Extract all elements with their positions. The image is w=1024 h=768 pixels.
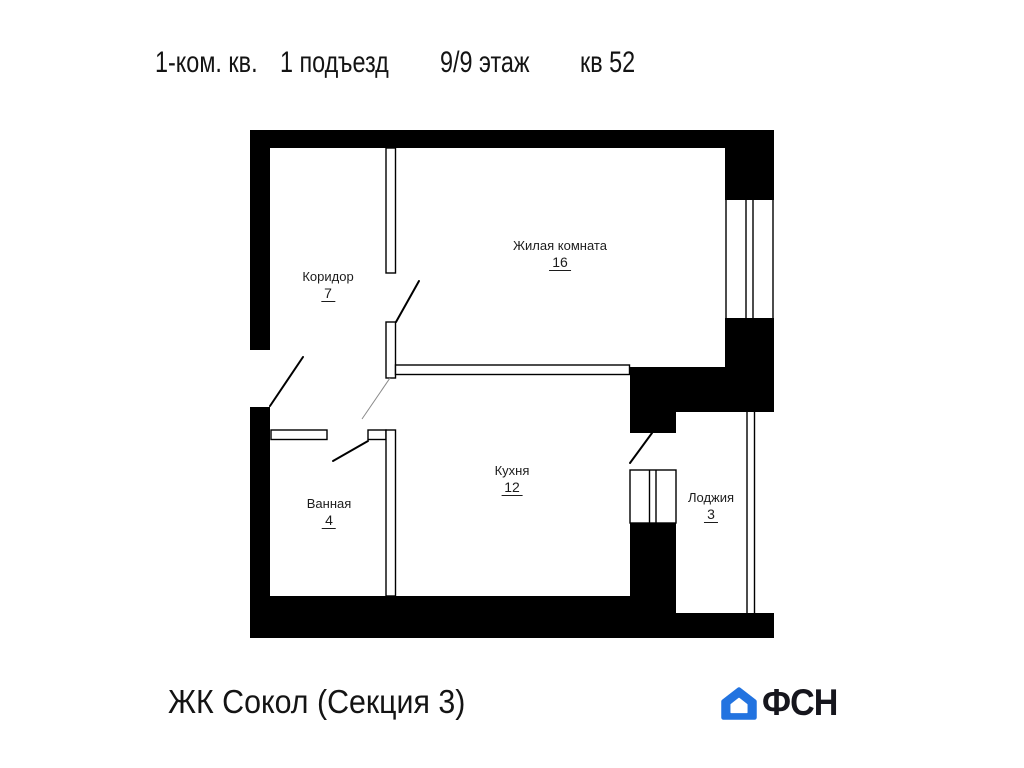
wall-loggia-upper (630, 412, 676, 433)
room-label-loggia: Лоджия 3 (688, 490, 734, 524)
room-name-corridor: Коридор (302, 269, 353, 284)
thick-walls (250, 130, 774, 638)
room-label-corridor: Коридор 7 (302, 269, 353, 303)
wall-right-below-window (725, 318, 774, 367)
living-door-swing (396, 281, 419, 322)
wall-top (250, 130, 774, 148)
floor-plan (0, 0, 1024, 768)
floorplan-page: 1-ком. кв. 1 подъезд 9/9 этаж кв 52 (0, 0, 1024, 768)
wall-loggia-lower (630, 523, 676, 638)
room-name-bathroom: Ванная (307, 496, 352, 511)
wall-living-bottom (630, 367, 774, 412)
loggia-window-frame (630, 470, 676, 523)
room-area-living: 16 (549, 254, 571, 271)
partition-corridor-living (386, 148, 396, 273)
room-label-kitchen: Кухня 12 (495, 463, 530, 497)
wall-top-right-corner (725, 130, 774, 200)
room-area-bathroom: 4 (322, 512, 336, 529)
jamb-bath-door (368, 430, 386, 440)
room-area-corridor: 7 (321, 285, 335, 302)
jamb-living-door (386, 322, 396, 378)
room-name-loggia: Лоджия (688, 490, 734, 505)
house-icon (721, 687, 757, 720)
wall-loggia-bottom (676, 613, 774, 638)
partition-bath-kitchen (386, 430, 396, 596)
complex-name: ЖК Сокол (Секция 3) (168, 684, 491, 720)
wall-kitchen-top (396, 365, 630, 375)
room-label-living: Жилая комната 16 (513, 238, 607, 272)
wall-bath-top (271, 430, 327, 440)
room-area-kitchen: 12 (501, 479, 523, 496)
room-label-bathroom: Ванная 4 (307, 496, 352, 530)
room-area-loggia: 3 (704, 506, 718, 523)
bath-door-swing (333, 441, 368, 461)
room-name-living: Жилая комната (513, 238, 607, 253)
complex-name-text: ЖК Сокол (Секция 3) (168, 684, 465, 720)
wall-left-upper (250, 130, 270, 350)
loggia-door-swing (630, 433, 652, 463)
fsn-logo: ФСН (721, 686, 844, 720)
kitchen-door-swing (362, 378, 390, 419)
wall-bottom (250, 596, 630, 638)
logo-text: ФСН (762, 686, 837, 719)
entry-door-swing (270, 357, 303, 406)
room-name-kitchen: Кухня (495, 463, 530, 478)
